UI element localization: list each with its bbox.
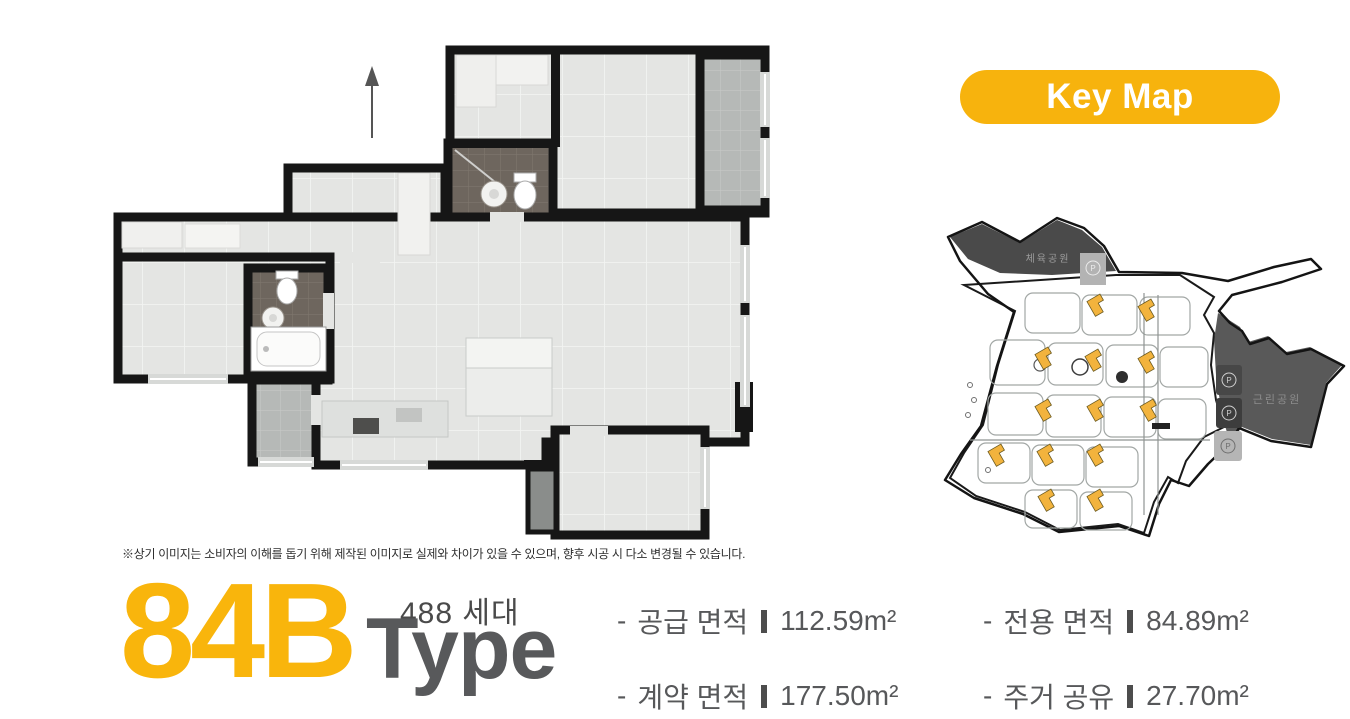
spec-separator-bar: [1127, 610, 1133, 633]
site-map-drawing: P P P P 체육공원 근린공원: [930, 215, 1350, 545]
spec-value: 112.59m²: [780, 605, 896, 637]
svg-text:P: P: [1226, 376, 1231, 385]
spec-label: 주거 공유: [1003, 676, 1114, 716]
unit-type-word: Type: [366, 606, 556, 692]
park-right-label: 근린공원: [1253, 393, 1301, 406]
svg-text:P: P: [1226, 409, 1231, 418]
north-arrow-icon: [365, 66, 379, 138]
room-balcony-right: [700, 55, 765, 210]
floor-plan-rooms: [118, 50, 765, 535]
spec-separator-bar: [761, 685, 767, 708]
floor-plan-drawing: [100, 10, 780, 540]
key-map-button[interactable]: Key Map: [960, 70, 1280, 124]
park-top-label: 체육공원: [1026, 253, 1071, 265]
spec-label: 계약 면적: [637, 676, 748, 716]
spec-prefix: -: [617, 680, 626, 712]
spec-value: 177.50m²: [780, 680, 898, 712]
key-map-label: Key Map: [1046, 77, 1193, 117]
room-bedroom-bottom: [555, 430, 705, 535]
brochure-page: ※상기 이미지는 소비자의 이해를 돕기 위해 제작된 이미지로 실제와 차이가…: [0, 0, 1350, 719]
spec-supply-area: - 공급 면적 112.59m²: [617, 601, 896, 641]
svg-text:P: P: [1225, 442, 1230, 451]
room-utility: [252, 380, 316, 462]
spec-separator-bar: [1127, 685, 1133, 708]
site-area: [950, 275, 1224, 533]
spec-contract-area: - 계약 면적 177.50m²: [617, 676, 898, 716]
kitchen-counter: [322, 401, 448, 437]
spec-residential-shared: - 주거 공유 27.70m²: [983, 676, 1249, 716]
spec-prefix: -: [983, 605, 992, 637]
spec-prefix: -: [617, 605, 626, 637]
spec-label: 전용 면적: [1003, 601, 1114, 641]
room-bathroom-1: [448, 143, 553, 217]
spec-exclusive-area: - 전용 면적 84.89m²: [983, 601, 1249, 641]
spec-separator-bar: [761, 610, 767, 633]
spec-prefix: -: [983, 680, 992, 712]
unit-type-code: 84B: [120, 563, 353, 698]
spec-label: 공급 면적: [637, 601, 748, 641]
spec-value: 27.70m²: [1146, 680, 1249, 712]
spec-value: 84.89m²: [1146, 605, 1249, 637]
svg-text:P: P: [1090, 264, 1095, 273]
